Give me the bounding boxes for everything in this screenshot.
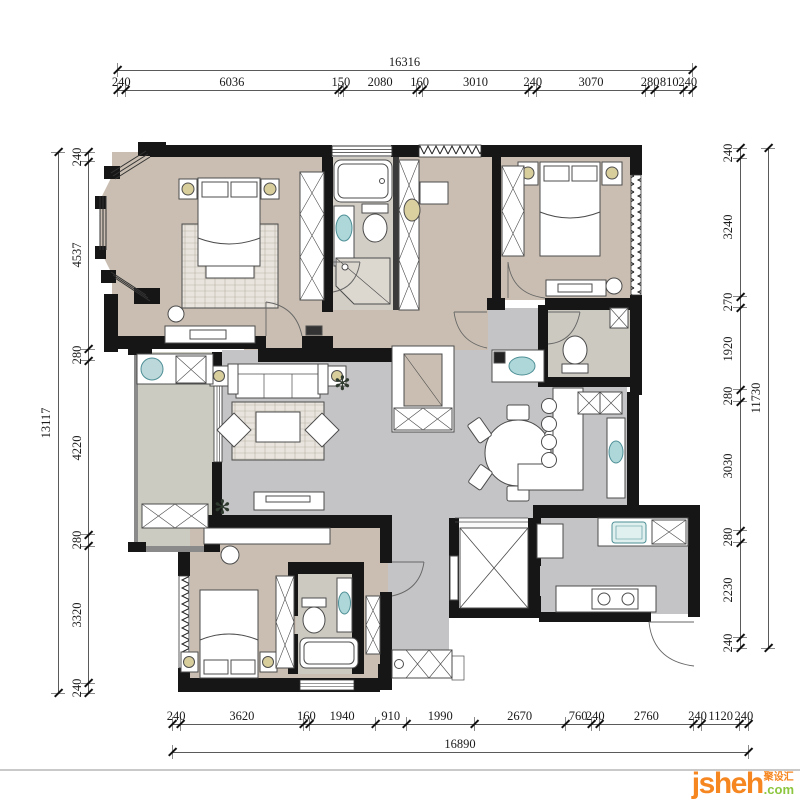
coat-closet xyxy=(392,346,454,432)
dimension-label: 280 xyxy=(722,386,734,405)
dimension-label: 240 xyxy=(112,76,131,88)
dimension-label: 3070 xyxy=(579,76,604,88)
dimension-label: 4537 xyxy=(71,243,83,268)
dining-cabinets xyxy=(578,392,622,414)
plant-icon: ✻ xyxy=(334,373,351,395)
floor-plan-page: ✻ ✻ 240603615020801603010240307028081024… xyxy=(0,0,800,800)
dimension-mark xyxy=(172,724,748,725)
desk-chair xyxy=(221,546,239,564)
tv-cabinet xyxy=(254,492,324,510)
dimension-mark xyxy=(740,148,741,648)
lamp-icon xyxy=(182,183,194,195)
watermark: jsheh 聚设汇 .com xyxy=(692,769,794,799)
dimension-mark xyxy=(172,752,748,753)
dimension-label: 280 xyxy=(71,531,83,550)
dimension-label: 270 xyxy=(722,293,734,312)
balcony-cabinet xyxy=(142,504,208,528)
dimension-label: 11730 xyxy=(750,383,762,414)
dimension-mark xyxy=(117,90,692,91)
lamp-icon xyxy=(214,371,225,382)
dimension-label: 240 xyxy=(586,710,605,722)
kitchen-cabinet xyxy=(652,520,686,544)
bedroom3-bed xyxy=(200,590,258,678)
dimension-label: 3320 xyxy=(71,602,83,627)
dimension-label: 1990 xyxy=(428,710,453,722)
bath-window xyxy=(332,146,392,156)
dimension-label: 280 xyxy=(722,527,734,546)
dimension-label: 160 xyxy=(297,710,316,722)
dimension-label: 280 xyxy=(641,76,660,88)
plant-icon: ✻ xyxy=(214,497,231,519)
toilet xyxy=(362,204,388,242)
stool xyxy=(404,199,420,221)
stove xyxy=(592,589,638,609)
dimension-mark xyxy=(117,70,692,71)
elevator xyxy=(455,518,528,608)
dimension-label: 1940 xyxy=(330,710,355,722)
sink-icon xyxy=(339,592,351,614)
dimension-label: 150 xyxy=(331,76,350,88)
dressing-table xyxy=(420,182,448,204)
dimension-label: 280 xyxy=(71,345,83,364)
dimension-label: 13117 xyxy=(40,407,52,438)
bottom-divider xyxy=(0,769,800,771)
coffee-table xyxy=(256,412,300,442)
dressing-wardrobe xyxy=(399,160,419,310)
bedroom3-wardrobe xyxy=(276,576,294,668)
dimension-label: 1920 xyxy=(722,336,734,361)
dimension-label: 160 xyxy=(410,76,429,88)
entry-bench xyxy=(392,650,464,680)
lamp-icon xyxy=(264,183,276,195)
kitchen-sink-icon xyxy=(612,522,646,543)
dimension-label: 3240 xyxy=(722,215,734,240)
bathtub xyxy=(334,160,392,202)
dimension-label: 2670 xyxy=(507,710,532,722)
corridor-door-leaf xyxy=(450,556,458,600)
dimension-label: 16890 xyxy=(444,738,475,750)
dimension-label: 240 xyxy=(523,76,542,88)
dimension-label: 760 xyxy=(569,710,588,722)
sofa xyxy=(228,364,328,398)
sink-icon xyxy=(509,357,535,375)
bath2-cabinet xyxy=(610,308,628,328)
dimension-label: 1120 xyxy=(708,710,733,722)
dimension-label: 240 xyxy=(735,710,754,722)
bath3-window xyxy=(300,680,354,690)
watermark-brand: jsheh xyxy=(692,769,763,799)
dimension-label: 4220 xyxy=(71,435,83,460)
laundry-sink-icon xyxy=(141,358,163,380)
lamp-icon xyxy=(263,657,274,668)
fridge xyxy=(537,524,563,558)
dimension-mark xyxy=(768,148,769,648)
dimension-label: 2760 xyxy=(634,710,659,722)
lamp-icon xyxy=(606,167,618,179)
dimension-label: 240 xyxy=(167,710,186,722)
dimension-mark xyxy=(88,152,89,693)
washing-machine xyxy=(176,356,206,383)
floor-plan-drawing: ✻ ✻ xyxy=(0,0,800,800)
bedroom2-bed xyxy=(540,162,600,256)
dimension-label: 240 xyxy=(71,148,83,167)
bath2-toilet xyxy=(562,336,588,373)
dimension-label: 240 xyxy=(71,679,83,698)
bedroom2-wardrobe xyxy=(502,166,524,256)
stool xyxy=(606,278,622,294)
dimension-label: 910 xyxy=(381,710,400,722)
dimension-label: 3030 xyxy=(722,454,734,479)
dimension-label: 810 xyxy=(660,76,679,88)
dimension-label: 3620 xyxy=(229,710,254,722)
bath3-tub xyxy=(300,638,358,668)
hall-decor xyxy=(306,326,322,335)
watermark-suffix: .com xyxy=(764,783,794,796)
sink-icon xyxy=(336,215,352,241)
chair xyxy=(168,306,184,322)
dimension-label: 240 xyxy=(722,144,734,163)
desk xyxy=(204,528,330,544)
sink-icon xyxy=(609,441,623,463)
dimension-mark xyxy=(58,152,59,693)
dimension-label: 240 xyxy=(678,76,697,88)
dimension-label: 240 xyxy=(688,710,707,722)
dimension-label: 2230 xyxy=(722,578,734,603)
dimension-label: 2080 xyxy=(368,76,393,88)
lamp-icon xyxy=(184,657,195,668)
dimension-label: 240 xyxy=(722,634,734,653)
dimension-label: 3010 xyxy=(463,76,488,88)
dimension-label: 16316 xyxy=(389,56,420,68)
bath3-toilet xyxy=(302,598,326,633)
master-bed xyxy=(198,178,260,278)
shoe-cabinet-tall xyxy=(366,596,380,654)
dimension-label: 6036 xyxy=(219,76,244,88)
master-wardrobe xyxy=(300,172,324,300)
